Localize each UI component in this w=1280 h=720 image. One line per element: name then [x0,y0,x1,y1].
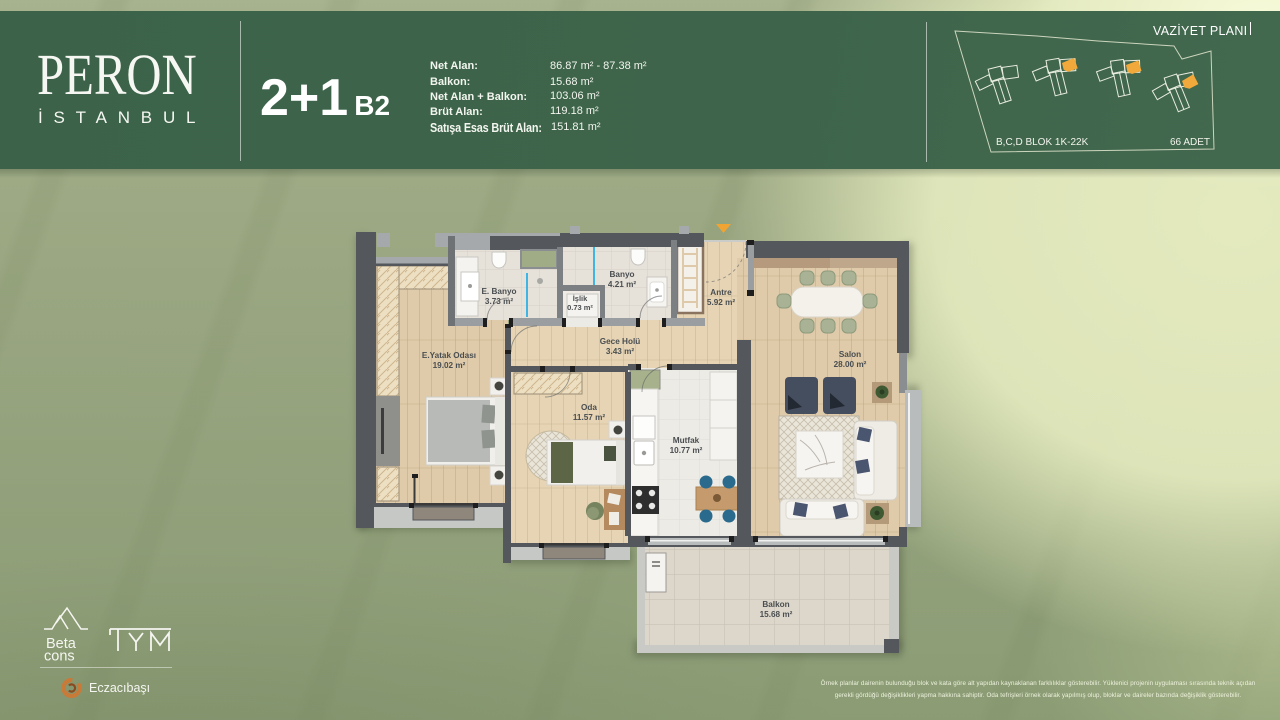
svg-text:E.Yatak Odası: E.Yatak Odası [422,351,476,360]
svg-text:Eczacıbaşı: Eczacıbaşı [89,681,150,695]
svg-text:Banyo: Banyo [609,270,634,279]
svg-text:66 ADET: 66 ADET [1170,137,1210,148]
svg-text:Antre: Antre [710,288,732,297]
svg-text:28.00 m²: 28.00 m² [834,360,867,369]
svg-text:B,C,D BLOK 1K-22K: B,C,D BLOK 1K-22K [996,137,1089,148]
svg-text:Mutfak: Mutfak [673,436,700,445]
svg-text:3.43 m²: 3.43 m² [606,347,634,356]
svg-text:E. Banyo: E. Banyo [481,287,516,296]
svg-text:Gece Holü: Gece Holü [600,337,641,346]
svg-text:15.68 m²: 15.68 m² [760,610,793,619]
svg-text:19.02 m²: 19.02 m² [433,361,466,370]
svg-text:10.77 m²: 10.77 m² [670,446,703,455]
svg-text:11.57 m²: 11.57 m² [573,413,606,422]
svg-text:Salon: Salon [839,350,861,359]
svg-text:cons: cons [44,649,75,665]
svg-text:4.21 m²: 4.21 m² [608,280,636,289]
svg-text:Balkon: Balkon [762,600,789,609]
svg-text:Oda: Oda [581,403,597,412]
svg-text:3.73 m²: 3.73 m² [485,297,513,306]
svg-text:0.73 m²: 0.73 m² [567,303,593,312]
svg-text:5.92 m²: 5.92 m² [707,298,735,307]
svg-text:İşlik: İşlik [573,294,588,303]
